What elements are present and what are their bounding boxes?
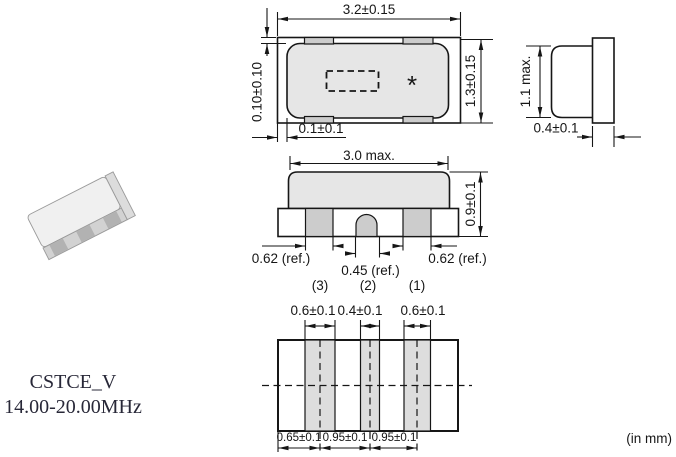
dimension-drawing: 3.2±0.15 * 0.10±0.10 1.3±0.15 (0, 0, 676, 457)
side-terminal-width-dimension (577, 126, 641, 147)
land-pad-width-label-3: 0.6±0.1 (401, 303, 446, 318)
front-terminal-center (356, 215, 377, 237)
front-terminal-left (306, 209, 334, 237)
top-body-outline (287, 44, 449, 119)
top-view: 3.2±0.15 * 0.10±0.10 1.3±0.15 (250, 2, 494, 142)
land-pad-width-dimensions (305, 320, 431, 340)
front-width-label: 3.0 max. (343, 148, 395, 163)
front-view: 3.0 max. 0.62 (ref.) 0.45 (ref.) 0.62 (r… (252, 148, 488, 293)
side-view: 1.1 max. 0.4±0.1 (518, 38, 641, 147)
land-pitch-label-3: 0.95±0.1 (372, 432, 417, 444)
terminal-inset-label: 0.1±0.1 (299, 121, 344, 136)
land-pad-width-label-1: 0.6±0.1 (291, 303, 336, 318)
top-view-height-label: 1.3±0.15 (463, 55, 478, 107)
terminal-protrusion-label: 0.10±0.10 (250, 62, 265, 122)
pad-width-left-label: 0.62 (ref.) (252, 251, 311, 266)
side-terminal-width-label: 0.4±0.1 (534, 121, 579, 136)
terminal-number-1: (1) (409, 278, 426, 293)
units-note: (in mm) (626, 431, 672, 446)
terminal-number-3: (3) (312, 278, 329, 293)
top-view-width-label: 3.2±0.15 (343, 2, 395, 17)
side-terminal-outline (593, 38, 615, 123)
part-series-label: CSTCE_V (30, 371, 117, 393)
part-frequency-label: 14.00-20.00MHz (4, 396, 142, 418)
pad-width-center-label: 0.45 (ref.) (341, 263, 400, 278)
pad-width-right-label: 0.62 (ref.) (428, 251, 487, 266)
side-height-label: 1.1 max. (518, 56, 533, 108)
land-pattern: 0.6±0.1 0.4±0.1 0.6±0.1 (262, 303, 472, 452)
corner-terminal-top-left (305, 38, 334, 45)
side-body-outline (552, 46, 594, 118)
front-cap-outline (289, 172, 450, 209)
marking-asterisk: * (407, 70, 417, 100)
land-pad-width-label-2: 0.4±0.1 (338, 303, 383, 318)
corner-terminal-bottom-right (403, 117, 433, 124)
terminal-number-2: (2) (360, 278, 377, 293)
front-height-label: 0.9±0.1 (463, 182, 478, 227)
corner-terminal-top-right (403, 38, 433, 45)
front-terminal-right (403, 209, 431, 237)
land-pitch-label-1: 0.65±0.1 (277, 432, 322, 444)
land-pitch-label-2: 0.95±0.1 (323, 432, 368, 444)
dimension-drawing-page: 3.2±0.15 * 0.10±0.10 1.3±0.15 (0, 0, 676, 457)
component-photo-illustration (27, 172, 136, 260)
